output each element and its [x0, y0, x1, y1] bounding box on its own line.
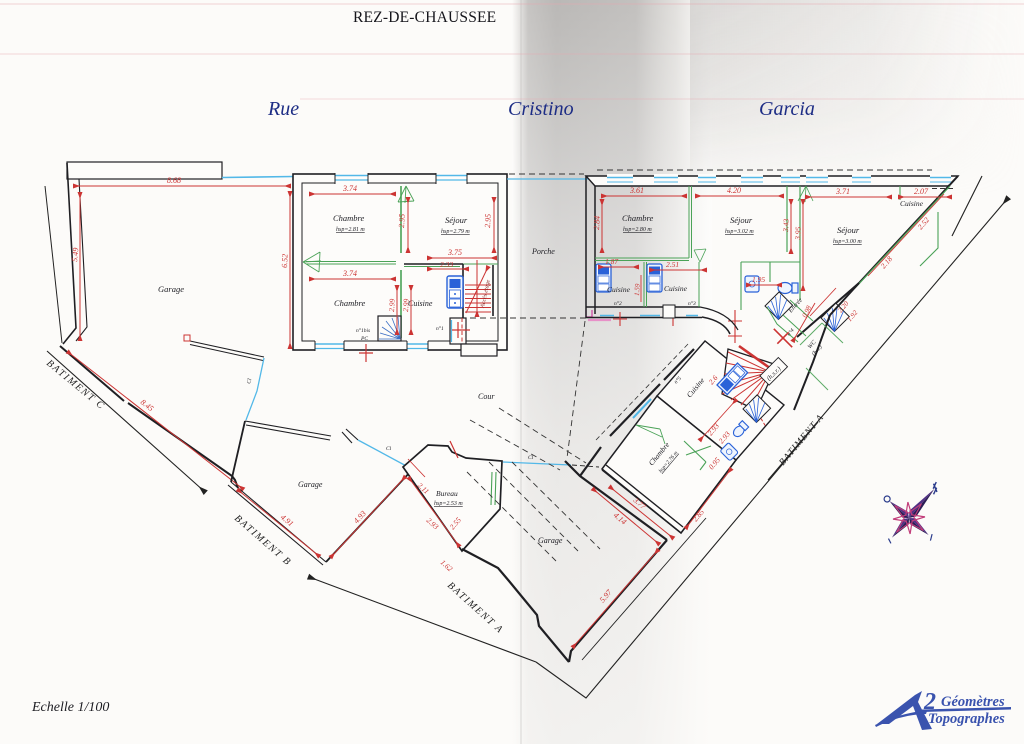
svg-text:Séjour: Séjour [837, 225, 860, 235]
svg-text:Cuisine: Cuisine [607, 285, 631, 294]
svg-text:3.95: 3.95 [793, 226, 803, 241]
svg-text:6.52: 6.52 [280, 254, 289, 268]
svg-text:Cuisine: Cuisine [664, 284, 688, 293]
svg-text:2.95: 2.95 [397, 214, 407, 228]
svg-text:hsp=2.53 m: hsp=2.53 m [434, 501, 463, 507]
svg-text:Cl: Cl [528, 455, 534, 461]
svg-text:Chambre: Chambre [622, 213, 654, 223]
svg-text:Chambre: Chambre [333, 213, 365, 223]
svg-text:3.75: 3.75 [447, 248, 462, 257]
svg-text:Cuisine: Cuisine [408, 299, 433, 308]
svg-text:hsp=3.02 m: hsp=3.02 m [725, 229, 754, 235]
svg-text:3.43: 3.43 [781, 218, 791, 233]
svg-text:BATIMENT A: BATIMENT A [445, 580, 506, 636]
svg-text:2.95: 2.95 [483, 214, 493, 228]
svg-text:n°4: n°4 [785, 327, 796, 338]
svg-text:n°3: n°3 [688, 300, 696, 307]
svg-text:BATIMENT A: BATIMENT A [778, 413, 827, 468]
svg-text:Cuisine: Cuisine [900, 199, 924, 208]
svg-text:4.20: 4.20 [727, 186, 741, 195]
svg-text:2.18: 2.18 [879, 254, 895, 270]
svg-text:1.87: 1.87 [605, 257, 618, 266]
svg-text:hsp=3.00 m: hsp=3.00 m [833, 239, 862, 245]
svg-text:Topographes: Topographes [928, 711, 1005, 727]
svg-text:Porche: Porche [531, 247, 555, 256]
svg-text:Garage: Garage [158, 284, 184, 294]
svg-text:Cl: Cl [246, 377, 253, 384]
svg-text:Cristino: Cristino [508, 98, 574, 120]
svg-text:8.68: 8.68 [167, 176, 181, 185]
svg-text:hsp=2.80 m: hsp=2.80 m [623, 227, 652, 233]
svg-text:0.98: 0.98 [801, 304, 814, 319]
svg-text:2.51: 2.51 [666, 260, 679, 269]
svg-text:3.61: 3.61 [629, 186, 644, 195]
svg-text:1.62: 1.62 [439, 558, 455, 574]
svg-text:n°1bis: n°1bis [356, 327, 370, 334]
svg-text:2.33: 2.33 [440, 260, 453, 269]
svg-text:Garage: Garage [298, 480, 323, 489]
svg-text:Garcia: Garcia [759, 98, 815, 120]
svg-text:1.92: 1.92 [845, 308, 859, 323]
svg-text:REZ-DE-CHAUSSEE: REZ-DE-CHAUSSEE [353, 9, 496, 26]
svg-text:2.99: 2.99 [387, 298, 397, 312]
svg-text:Bureau: Bureau [436, 489, 458, 498]
svg-text:Séjour: Séjour [445, 215, 468, 225]
svg-text:4.91: 4.91 [279, 513, 296, 529]
svg-text:BATIMENT C: BATIMENT C [44, 358, 107, 413]
svg-text:3.71: 3.71 [835, 187, 850, 196]
svg-text:1.59: 1.59 [633, 283, 642, 296]
svg-text:n°2: n°2 [614, 300, 622, 307]
svg-text:n°1: n°1 [436, 325, 444, 332]
svg-text:3.74: 3.74 [342, 184, 357, 193]
svg-text:2.99: 2.99 [401, 298, 411, 312]
svg-text:Rue: Rue [267, 98, 299, 120]
svg-text:4.93: 4.93 [352, 509, 368, 525]
svg-text:hsp=2.79 m: hsp=2.79 m [441, 229, 470, 235]
svg-text:Garage: Garage [538, 536, 563, 545]
svg-text:8.45: 8.45 [139, 397, 156, 413]
svg-text:5.49: 5.49 [70, 247, 80, 262]
svg-text:Cl: Cl [386, 446, 392, 452]
svg-text:hsp=2.81 m: hsp=2.81 m [336, 227, 365, 233]
svg-text:Echelle 1/100: Echelle 1/100 [31, 700, 109, 715]
svg-text:1.95: 1.95 [752, 275, 765, 284]
svg-text:2.84: 2.84 [592, 216, 602, 230]
svg-text:3.74: 3.74 [342, 269, 357, 278]
svg-text:PC: PC [360, 336, 368, 342]
svg-text:Séjour: Séjour [730, 215, 753, 225]
svg-text:2.07: 2.07 [914, 187, 929, 196]
svg-text:Cour: Cour [478, 392, 495, 401]
svg-text:Chambre: Chambre [334, 298, 366, 308]
